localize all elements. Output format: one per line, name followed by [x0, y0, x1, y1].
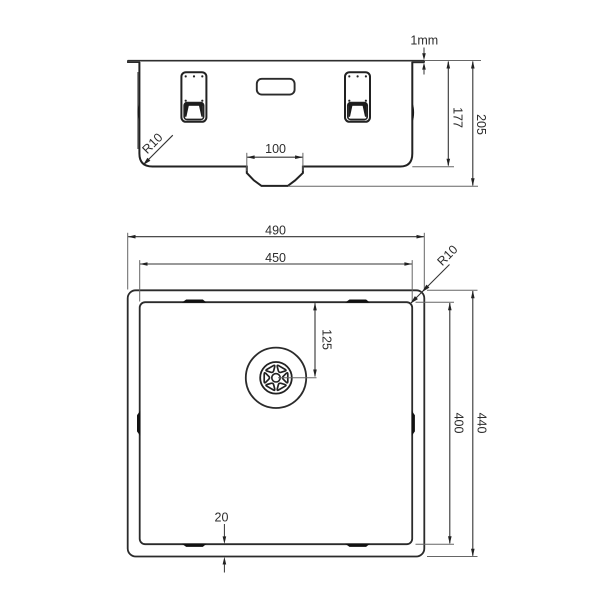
- svg-text:450: 450: [265, 251, 286, 265]
- svg-text:400: 400: [452, 413, 466, 434]
- svg-text:440: 440: [474, 413, 488, 434]
- svg-text:20: 20: [215, 511, 229, 525]
- svg-text:100: 100: [265, 142, 286, 156]
- svg-text:177: 177: [451, 107, 465, 128]
- svg-text:1mm: 1mm: [410, 34, 438, 48]
- svg-text:490: 490: [265, 224, 286, 238]
- svg-text:125: 125: [320, 329, 334, 350]
- svg-text:205: 205: [474, 114, 488, 135]
